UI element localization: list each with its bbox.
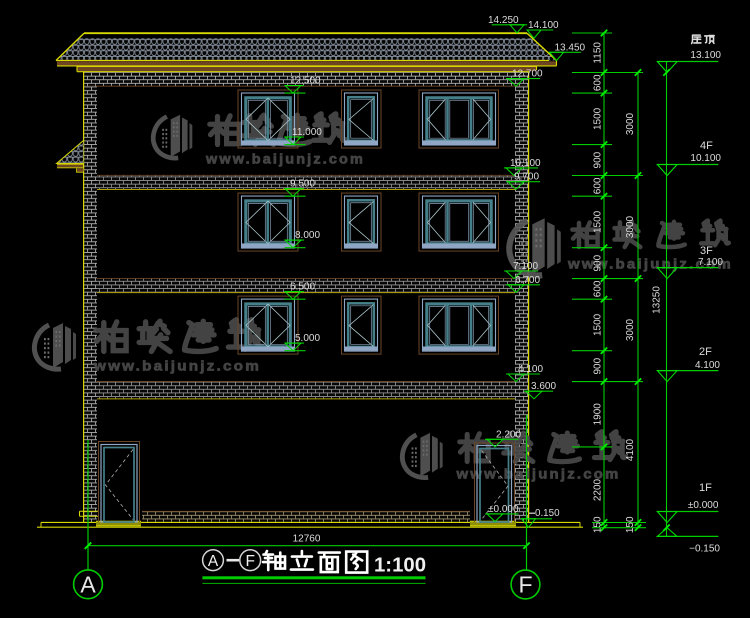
svg-text:14.100: 14.100 <box>528 20 559 31</box>
svg-text:3000: 3000 <box>625 112 636 135</box>
svg-text:±0.000: ±0.000 <box>488 504 519 515</box>
svg-text:4.100: 4.100 <box>695 360 720 371</box>
svg-text:3.600: 3.600 <box>531 381 556 392</box>
svg-text:A: A <box>208 553 219 570</box>
svg-text:www.baijunjz.com: www.baijunjz.com <box>93 358 261 374</box>
svg-text:A: A <box>80 571 96 597</box>
svg-text:3000: 3000 <box>625 215 636 238</box>
svg-text:9.700: 9.700 <box>514 172 539 183</box>
svg-text:7.100: 7.100 <box>698 257 723 268</box>
svg-text:900: 900 <box>593 254 604 271</box>
svg-text:1150: 1150 <box>593 42 604 64</box>
svg-text:8.000: 8.000 <box>295 230 320 241</box>
svg-text:12.500: 12.500 <box>290 76 321 87</box>
svg-text:13.450: 13.450 <box>555 42 586 53</box>
svg-text:5.000: 5.000 <box>295 333 320 344</box>
svg-text:2200: 2200 <box>593 478 604 501</box>
svg-text:12760: 12760 <box>293 534 321 545</box>
svg-text:150: 150 <box>625 516 636 533</box>
svg-text:1:100: 1:100 <box>374 555 426 577</box>
svg-text:3F: 3F <box>700 245 713 257</box>
svg-text:6.700: 6.700 <box>515 275 540 286</box>
svg-text:1F: 1F <box>699 482 712 494</box>
svg-text:13250: 13250 <box>652 286 663 314</box>
svg-text:11.000: 11.000 <box>292 127 322 138</box>
svg-text:900: 900 <box>593 357 604 374</box>
svg-text:600: 600 <box>593 280 604 297</box>
svg-text:10.100: 10.100 <box>690 153 721 164</box>
svg-text:900: 900 <box>593 151 604 168</box>
svg-text:F: F <box>518 572 532 598</box>
svg-text:4.100: 4.100 <box>518 364 543 375</box>
svg-text:14.250: 14.250 <box>488 15 519 26</box>
svg-text:2F: 2F <box>699 346 712 358</box>
svg-text:4100: 4100 <box>625 438 636 461</box>
svg-text:±0.000: ±0.000 <box>688 500 719 511</box>
svg-text:F: F <box>245 553 254 570</box>
svg-text:9.500: 9.500 <box>290 179 315 190</box>
svg-text:6.500: 6.500 <box>290 282 315 293</box>
svg-text:600: 600 <box>593 74 604 91</box>
svg-text:3000: 3000 <box>625 318 636 341</box>
svg-text:1500: 1500 <box>593 313 604 336</box>
svg-text:0.150: 0.150 <box>535 508 560 519</box>
svg-text:4F: 4F <box>700 140 713 152</box>
svg-text:150: 150 <box>593 516 604 533</box>
svg-text:www.baijunjz.com: www.baijunjz.com <box>205 152 365 167</box>
svg-text:1500: 1500 <box>593 210 604 233</box>
svg-text:1900: 1900 <box>593 403 604 426</box>
svg-text:13.100: 13.100 <box>690 50 721 61</box>
svg-text:1500: 1500 <box>593 107 604 130</box>
svg-text:7.100: 7.100 <box>513 261 538 272</box>
svg-text:600: 600 <box>593 177 604 194</box>
svg-text:10.100: 10.100 <box>510 158 541 169</box>
svg-text:12.700: 12.700 <box>512 69 543 80</box>
svg-text:−0.150: −0.150 <box>689 544 720 555</box>
svg-text:2.200: 2.200 <box>496 429 521 440</box>
